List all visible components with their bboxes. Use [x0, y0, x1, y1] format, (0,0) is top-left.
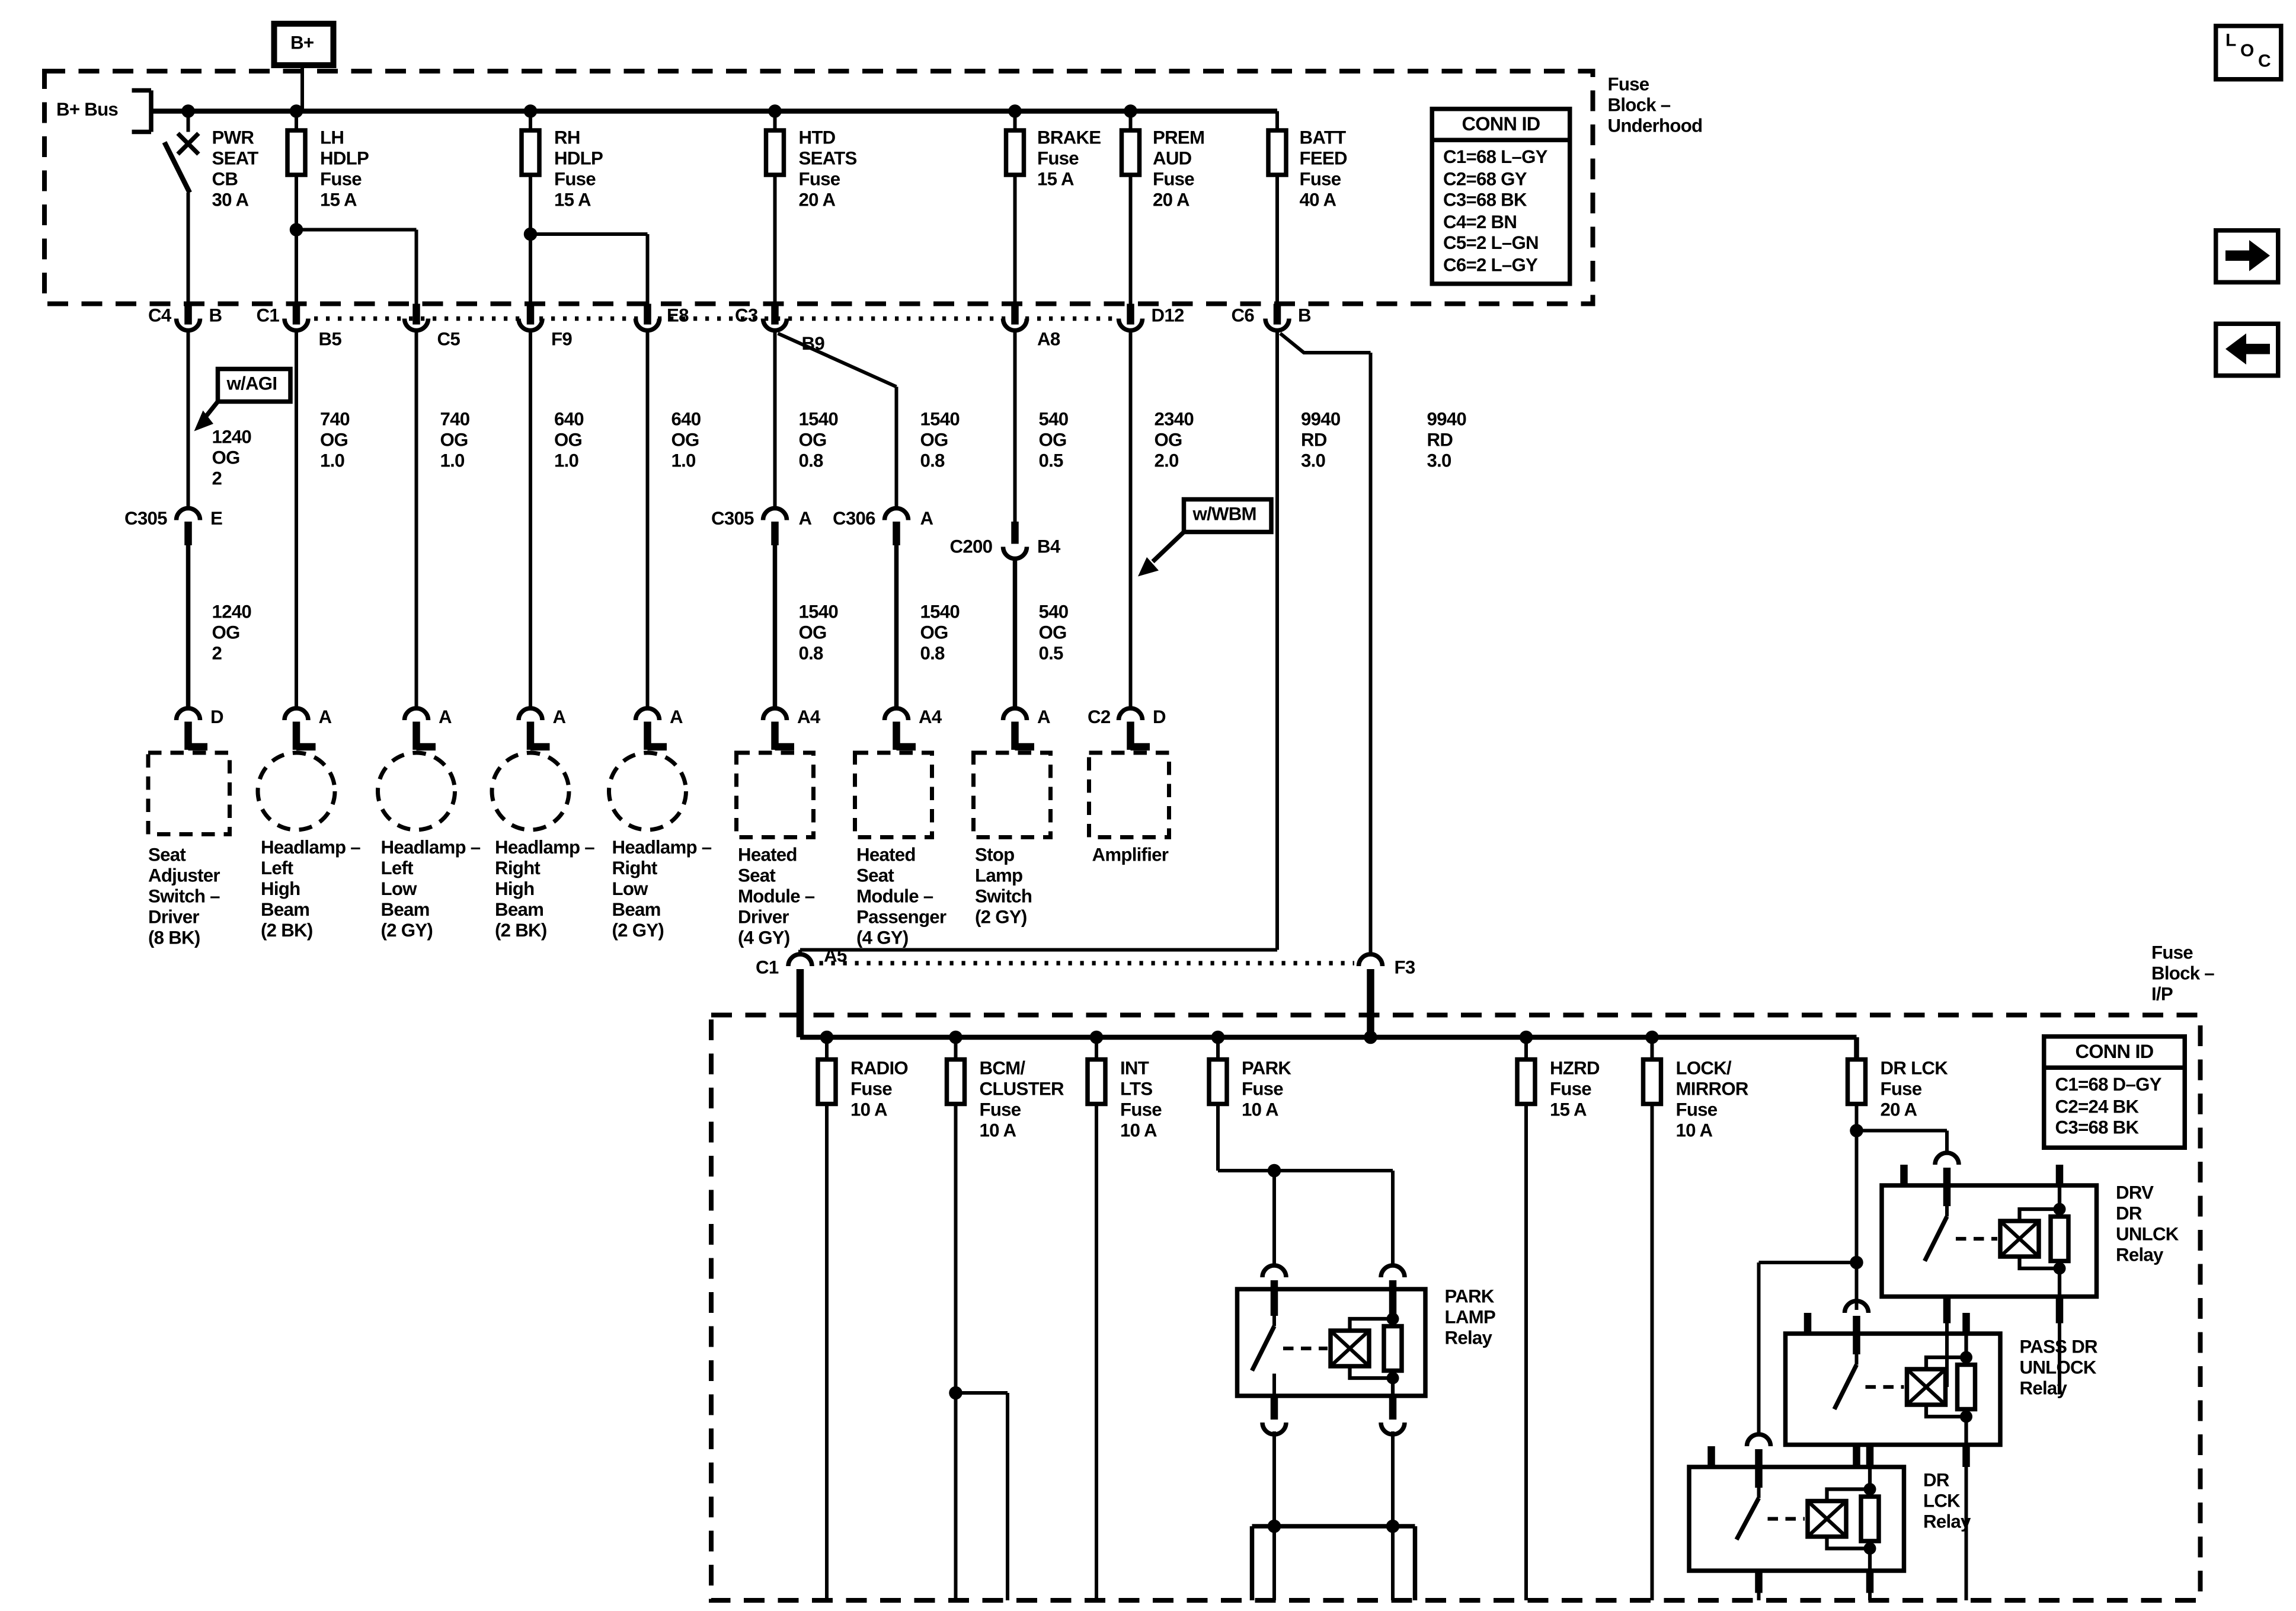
drv-dr-unlck-relay-label: DRV DR UNLCK Relay — [2116, 1182, 2179, 1265]
underhood-block-label: Fuse Block – Underhood — [1608, 74, 1703, 136]
wire-740-b5: 740 OG 1.0 — [320, 409, 350, 471]
pin-e8: E8 — [667, 305, 689, 326]
agi-callout-label: w/AGI — [227, 373, 277, 394]
lock-mirror-fuse-label: LOCK/ MIRROR Fuse 10 A — [1676, 1058, 1748, 1141]
wire-2340: 2340 OG 2.0 — [1155, 409, 1194, 471]
pin-c305-a: A — [799, 509, 812, 529]
htd-seats-fuse-label: HTD SEATS Fuse 20 A — [799, 127, 857, 210]
underhood-fuse-symbols — [287, 111, 1286, 304]
pin-c306-a: A — [920, 509, 933, 529]
wire-740-c5: 740 OG 1.0 — [440, 409, 470, 471]
dr-lck-relay — [1689, 1434, 1904, 1600]
rh-hdlp-fuse-label: RH HDLP Fuse 15 A — [554, 127, 603, 210]
wire-1240-lower: 1240 OG 2 — [212, 602, 252, 664]
heated-seat-passenger-box — [855, 753, 932, 838]
ip-conn-id-title: CONN ID — [2046, 1039, 2183, 1070]
heated-seat-passenger-label: Heated Seat Module – Passenger (4 GY) — [856, 845, 946, 948]
headlamp-ll-label: Headlamp – Left Low Beam (2 GY) — [381, 838, 481, 941]
pin-amp-c2: C2 — [1088, 707, 1110, 728]
wbm-callout-label: w/WBM — [1193, 504, 1256, 525]
headlamp-lh-label: Headlamp – Left High Beam (2 BK) — [261, 838, 360, 941]
loc-letter-l: L — [2225, 30, 2236, 50]
bplus-bus-label: B+ Bus — [56, 100, 118, 120]
radio-fuse-label: RADIO Fuse 10 A — [850, 1058, 908, 1120]
headlamp-right-high-circle — [492, 753, 569, 830]
pin-hl4-a: A — [670, 707, 683, 728]
wire-540-upper: 540 OG 0.5 — [1039, 409, 1069, 471]
conn-id-rows: C1=68 L–GY C2=68 GY C3=68 BK C4=2 BN C5=… — [1434, 142, 1568, 282]
ip-bus — [800, 1033, 1857, 1060]
pin-stop-a: A — [1037, 707, 1050, 728]
pin-c1: C1 — [257, 305, 279, 326]
pin-b9: B9 — [802, 334, 824, 354]
headlamp-left-low-circle — [378, 753, 455, 830]
rh-hdlp-branch — [530, 234, 648, 304]
heated-seat-driver-label: Heated Seat Module – Driver (4 GY) — [738, 845, 814, 948]
dr-lck-fuse-label: DR LCK Fuse 20 A — [1881, 1058, 1948, 1120]
pwr-seat-circuit-breaker — [165, 111, 199, 304]
bplus-bus-bracket — [132, 91, 152, 132]
pin-seat-d: D — [210, 707, 223, 728]
ip-block-label: Fuse Block – I/P — [2151, 942, 2214, 1005]
prev-page-button[interactable] — [2214, 322, 2281, 378]
pin-hl1-a: A — [319, 707, 332, 728]
stop-lamp-switch-box — [974, 753, 1051, 838]
heated-seat-driver-box — [737, 753, 814, 838]
pin-amp-d: D — [1153, 707, 1166, 728]
batt-feed-fuse-label: BATT FEED Fuse 40 A — [1300, 127, 1347, 210]
brake-fuse-label: BRAKE Fuse 15 A — [1037, 127, 1101, 190]
ip-conn-id-rows: C1=68 D–GY C2=24 BK C3=68 BK — [2046, 1070, 2183, 1145]
prem-aud-fuse-label: PREM AUD Fuse 20 A — [1153, 127, 1204, 210]
pin-f9: F9 — [551, 329, 572, 350]
wire-540-lower: 540 OG 0.5 — [1039, 602, 1069, 664]
pin-hsm1-a4: A4 — [797, 707, 820, 728]
int-lts-fuse-label: INT LTS Fuse 10 A — [1120, 1058, 1162, 1141]
loc-button[interactable]: L O C — [2214, 24, 2284, 82]
conn-c305-a: C305 — [711, 509, 754, 529]
pin-hsm2-a4: A4 — [919, 707, 941, 728]
next-page-button[interactable] — [2214, 228, 2281, 285]
wire-9940-right: 9940 RD 3.0 — [1427, 409, 1467, 471]
pin-c6: C6 — [1232, 305, 1254, 326]
ip-entry-connectors — [788, 954, 1383, 1037]
seat-adjuster-label: Seat Adjuster Switch – Driver (8 BK) — [148, 845, 220, 948]
wire-1240-upper: 1240 OG 2 — [212, 427, 252, 489]
wire-1540-right-upper: 1540 OG 0.8 — [920, 409, 960, 471]
pin-c3: C3 — [735, 305, 757, 326]
wire-640-f9: 640 OG 1.0 — [554, 409, 584, 471]
pin-c5: C5 — [437, 329, 460, 350]
wiring-diagram-page: B+ B+ Bus Fuse Block – Underhood PWR SEA… — [0, 0, 2296, 1611]
dr-lck-relay-label: DR LCK Relay — [1923, 1470, 1971, 1532]
pin-e: E — [210, 509, 222, 529]
pin-d12: D12 — [1152, 305, 1184, 326]
conn-c305-e: C305 — [124, 509, 167, 529]
headlamp-rl-label: Headlamp – Right Low Beam (2 GY) — [612, 838, 712, 941]
stop-lamp-label: Stop Lamp Switch (2 GY) — [975, 845, 1032, 928]
wire-1540-left-lower: 1540 OG 0.8 — [799, 602, 839, 664]
pwr-seat-cb-label: PWR SEAT CB 30 A — [212, 127, 258, 210]
arrow-left-icon — [2219, 326, 2275, 372]
wiring-diagram-canvas — [0, 0, 2296, 1611]
pin-c4: C4 — [148, 305, 171, 326]
arrow-right-icon — [2219, 233, 2275, 279]
pass-dr-unlock-relay-label: PASS DR UNLOCK Relay — [2020, 1337, 2097, 1399]
park-lamp-relay — [1237, 1265, 1426, 1600]
wire-9940-left: 9940 RD 3.0 — [1301, 409, 1341, 471]
lh-hdlp-branch — [296, 230, 417, 304]
wire-640-e8: 640 OG 1.0 — [671, 409, 701, 471]
loc-letter-c: C — [2258, 50, 2271, 71]
pass-dr-unlock-relay — [1786, 1262, 2001, 1600]
pin-c4-b: B — [209, 305, 222, 326]
ip-pin-f3: F3 — [1395, 957, 1415, 978]
inline-connectors — [177, 509, 1027, 707]
headlamp-left-high-circle — [258, 753, 335, 830]
headlamp-rh-label: Headlamp – Right High Beam (2 BK) — [495, 838, 594, 941]
pin-hl2-a: A — [439, 707, 452, 728]
pin-b5: B5 — [319, 329, 341, 350]
ip-pin-a5: A5 — [824, 945, 846, 966]
park-fuse-label: PARK Fuse 10 A — [1242, 1058, 1291, 1120]
amplifier-label: Amplifier — [1092, 845, 1169, 865]
conn-c306: C306 — [833, 509, 875, 529]
conn-c200: C200 — [950, 536, 993, 557]
hzrd-fuse-label: HZRD Fuse 15 A — [1550, 1058, 1600, 1120]
seat-adjuster-switch-box — [148, 753, 230, 835]
underhood-conn-id-table: CONN ID C1=68 L–GY C2=68 GY C3=68 BK C4=… — [1430, 107, 1572, 286]
underhood-output-connectors — [177, 304, 1290, 331]
park-lamp-relay-label: PARK LAMP Relay — [1445, 1286, 1496, 1348]
pin-hl3-a: A — [553, 707, 566, 728]
pin-c6-b: B — [1298, 305, 1311, 326]
wire-1540-right-lower: 1540 OG 0.8 — [920, 602, 960, 664]
ip-conn-id-table: CONN ID C1=68 D–GY C2=24 BK C3=68 BK — [2042, 1034, 2187, 1149]
ip-conn-c1: C1 — [756, 957, 778, 978]
wire-1540-left-upper: 1540 OG 0.8 — [799, 409, 839, 471]
component-shapes — [148, 753, 1169, 838]
pin-a8: A8 — [1037, 329, 1060, 350]
amplifier-box — [1089, 753, 1169, 838]
conn-id-title: CONN ID — [1434, 111, 1568, 143]
bcm-cluster-fuse-label: BCM/ CLUSTER Fuse 10 A — [980, 1058, 1064, 1141]
pin-b4: B4 — [1037, 536, 1060, 557]
loc-letter-o: O — [2240, 40, 2254, 61]
lh-hdlp-fuse-label: LH HDLP Fuse 15 A — [320, 127, 369, 210]
headlamp-right-low-circle — [609, 753, 686, 830]
bplus-label: B+ — [290, 33, 314, 53]
